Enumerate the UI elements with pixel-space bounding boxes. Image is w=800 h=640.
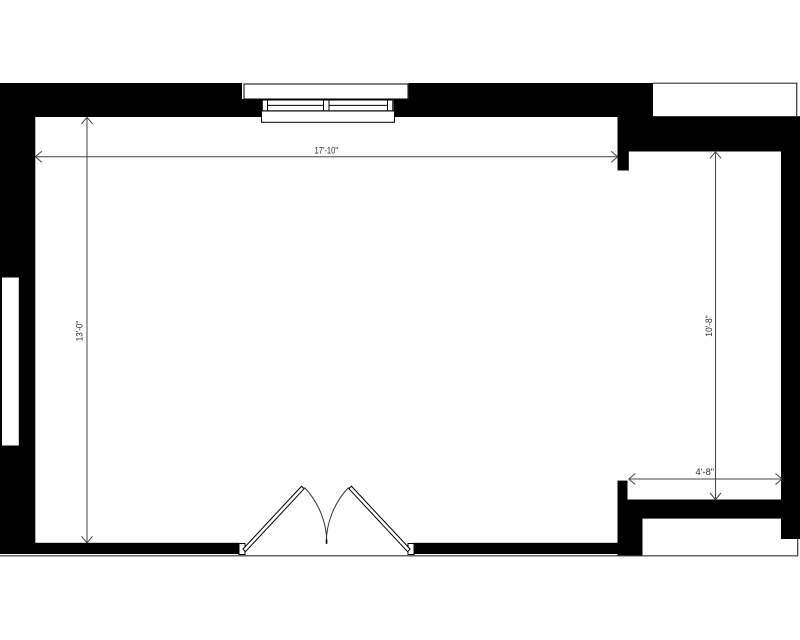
svg-text:17'-10": 17'-10": [315, 146, 339, 156]
svg-text:10'-8": 10'-8": [704, 315, 714, 337]
svg-text:13'-0": 13'-0": [74, 321, 84, 342]
svg-text:4'-8": 4'-8": [696, 467, 715, 477]
